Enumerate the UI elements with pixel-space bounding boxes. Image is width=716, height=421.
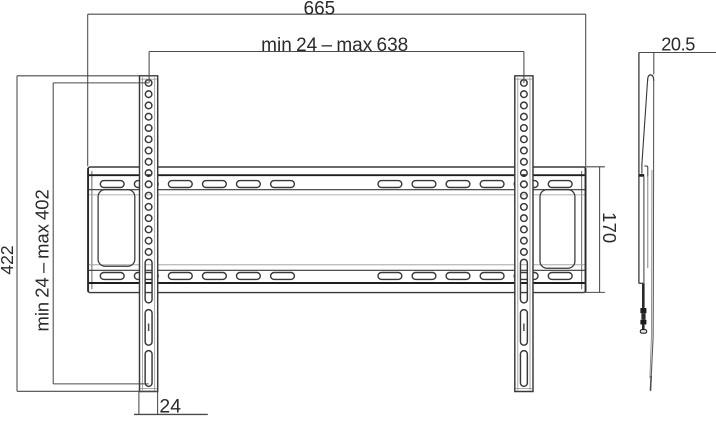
svg-text:min 24 – max 638: min 24 – max 638 bbox=[261, 35, 408, 56]
svg-text:24: 24 bbox=[159, 395, 181, 416]
svg-text:min 24 – max 402: min 24 – max 402 bbox=[32, 189, 53, 331]
svg-text:665: 665 bbox=[304, 0, 336, 19]
svg-text:422: 422 bbox=[0, 245, 17, 274]
svg-text:20.5: 20.5 bbox=[661, 35, 695, 55]
svg-text:170: 170 bbox=[599, 212, 620, 243]
